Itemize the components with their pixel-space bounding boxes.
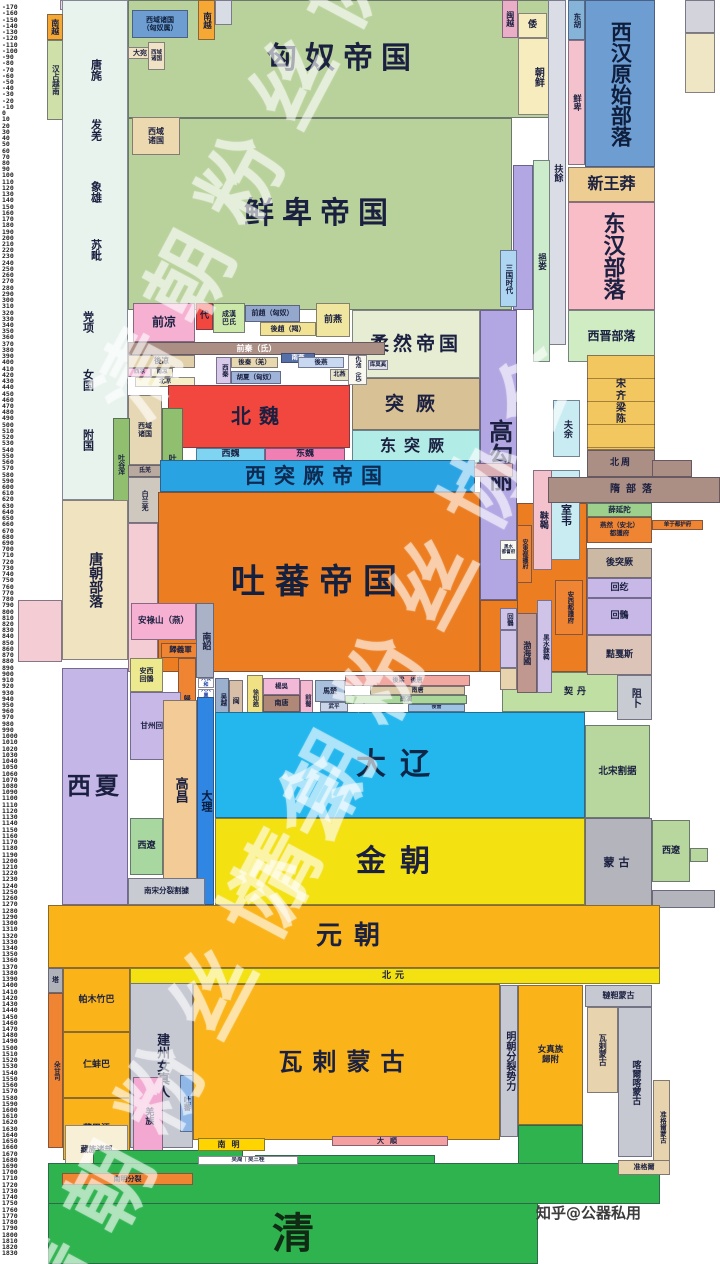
block-153-label: 准格爾: [618, 1160, 670, 1175]
block-25: [685, 0, 715, 33]
block-8-label: 党项: [76, 300, 98, 344]
dynasty-timeline-chart: -170-160-150-140-130-120-110-100-90-80-7…: [0, 0, 720, 1264]
block-5-label: 发羌: [84, 108, 106, 152]
block-79-label: 南詔: [196, 603, 214, 678]
block-38-label: 前凉: [133, 303, 195, 342]
block-113-label: 楊吳: [263, 678, 300, 695]
block-33-label: 三国时代: [500, 250, 517, 307]
block-92-label: 回鶻: [500, 608, 517, 630]
block-50-label: 後秦（羌）: [231, 357, 278, 368]
block-101-label: 隋部落: [548, 477, 720, 503]
block-6-label: 象雄: [84, 170, 106, 214]
block-65-label: 白兰羌: [128, 477, 162, 523]
block-26: [685, 33, 715, 93]
block-43-label: 前燕: [316, 303, 350, 337]
block-44-label: 前秦（氐）: [128, 342, 385, 355]
block-47-label: 南凉: [151, 368, 173, 377]
block-118-label: 後梁 後唐: [345, 675, 470, 686]
zhihu-credit: 知乎@公器私用: [536, 1202, 720, 1223]
block-134-label: 朵甘司: [48, 993, 63, 1148]
block-141-label: 吐蕃: [180, 1075, 193, 1132]
block-106-label: 回纥: [587, 578, 652, 598]
eastern-han-tribes: 东汉部落: [568, 202, 655, 310]
block-55-label: 仇池（氐）: [348, 355, 367, 385]
block-17: [215, 0, 232, 25]
block-114-label: 南唐: [263, 695, 300, 712]
block-102-label: 薛延陀: [587, 503, 652, 517]
dali: 大理: [197, 697, 214, 905]
block-135-label: 帕木竹巴: [63, 968, 130, 1032]
block-93: [500, 630, 517, 668]
block-121-label: 後晉: [408, 704, 465, 712]
block-154-label: 南明分裂: [62, 1173, 193, 1185]
tang-tribes: 唐朝部落: [62, 500, 128, 660]
xin-wangmang: 新王莽: [568, 167, 655, 202]
block-136-label: 仁蚌巴: [63, 1032, 130, 1098]
block-95-label: 夫余: [553, 400, 580, 457]
block-108-label: 黠戛斯: [587, 635, 652, 675]
block-49-label: 西秦: [216, 357, 231, 384]
xianbei-empire: 鲜卑帝国: [128, 118, 512, 310]
block-146-label: 喀爾喀蒙古: [618, 1007, 652, 1157]
block-89-label: 安東都護府: [517, 525, 532, 583]
block-100: [652, 460, 692, 477]
block-88-label: 黑水靺鞨: [537, 600, 552, 693]
block-90-label: 黑水 都督府: [500, 540, 517, 560]
block-85-label: 南宋分裂割據: [128, 878, 205, 905]
block-73-label: 安祿山（燕）: [131, 603, 196, 640]
block-4-label: 唐旄: [84, 48, 106, 92]
block-11-label: 南越: [47, 14, 63, 40]
southern-dynasties: 宋 齐 梁 陈: [587, 355, 655, 450]
block-18-label: 闽越: [502, 0, 518, 38]
yuan: 元朝: [48, 905, 660, 968]
block-74-label: 歸義軍: [161, 643, 200, 658]
block-51-label: 胡夏（匈奴）: [231, 371, 281, 384]
block-30-label: 挹娄: [533, 160, 550, 362]
block-109-label: 阻卜: [617, 675, 652, 720]
block-70: [18, 600, 62, 662]
ming-splinter: 明朝分裂势力: [500, 985, 518, 1137]
western-han-tribes: 西汉原始部落: [585, 0, 655, 167]
block-91-label: 安西都護府: [555, 580, 583, 635]
block-156-label: 大順: [332, 1136, 448, 1146]
block-128-label: 西遼: [652, 820, 690, 882]
block-12-label: 汉占越南: [47, 40, 63, 120]
block-13-label: 西域诸国 （匈奴属）: [132, 10, 188, 38]
block-40-label: 成漢 巴氏: [213, 303, 245, 333]
block-16-label: 南越: [198, 0, 215, 40]
block-87-label: 渤海國: [517, 613, 537, 693]
block-157-label: 吴周｜吴三桂: [198, 1156, 298, 1165]
western-xia: 西夏: [62, 668, 128, 905]
block-19-label: 倭: [518, 13, 547, 38]
oirat-mongols: 瓦剌蒙古: [193, 984, 500, 1140]
block-129: [690, 848, 708, 862]
block-80-label: 大長和: [198, 678, 214, 688]
block-76-label: 安西 回鶻: [130, 658, 163, 692]
block-140-label: 羌族: [133, 1077, 163, 1155]
block-120-label: 南漢: [345, 695, 467, 704]
block-133-label: 塔: [48, 968, 63, 993]
block-39-label: 代: [196, 303, 213, 330]
mongol: 蒙古: [585, 818, 652, 908]
block-116-label: 馬楚: [315, 680, 345, 702]
block-61-label: 西域 诸国: [128, 395, 162, 465]
turkic-khaganate: 突厥: [352, 378, 480, 430]
block-150: [518, 1125, 583, 1165]
block-45-label: 後凉: [128, 355, 195, 368]
timeline-year-label: 1830: [2, 1250, 18, 1257]
block-103-label: 燕然（安北） 都護府: [587, 517, 652, 543]
block-84-label: 西遼: [130, 818, 163, 875]
block-119-label: 南唐: [370, 686, 465, 695]
block-53-label: 後燕: [298, 357, 344, 368]
block-125-label: 北宋割据: [585, 725, 650, 818]
block-10-label: 附国: [76, 418, 98, 462]
block-64-label: 氐羌: [128, 465, 162, 477]
block-42-label: 後趙（羯）: [260, 322, 316, 336]
block-99-label: 北周: [587, 450, 655, 477]
block-54-label: 北燕: [330, 369, 349, 381]
block-41-label: 前趙（匈奴）: [245, 305, 300, 322]
block-71: [128, 523, 158, 672]
block-56-label: 库莫奚: [368, 360, 388, 370]
block-145-label: 瓦剌蒙古: [587, 1007, 618, 1093]
block-127: [652, 890, 715, 908]
block-117-label: 武平: [320, 702, 348, 712]
northern-wei: 北魏: [168, 385, 350, 448]
block-143-label: 女真族 歸附: [518, 985, 583, 1125]
block-46-label: 西凉: [128, 368, 151, 377]
block-7-label: 苏毗: [84, 228, 106, 272]
block-104-label: 单于都护府: [652, 520, 703, 530]
block-60-label: 西域 诸国: [132, 117, 180, 155]
block-94: [500, 668, 517, 690]
block-22-label: 东胡: [568, 0, 585, 40]
block-36-label: 东突厥: [352, 430, 480, 463]
xiongnu-empire: 匈奴帝国: [128, 0, 558, 118]
jin: 金朝: [215, 818, 585, 905]
block-9-label: 女国: [76, 358, 98, 402]
liao: 大辽: [215, 712, 585, 818]
block-105-label: 後突厥: [587, 548, 652, 578]
qing: 清: [48, 1203, 538, 1264]
block-23-label: 鲜卑: [568, 40, 585, 165]
block-83-label: 高昌: [163, 700, 197, 880]
block-131-label: 北元: [130, 968, 660, 984]
block-155-label: 南明: [198, 1138, 265, 1151]
western-turkic: 西突厥帝国: [160, 460, 475, 492]
block-107-label: 回鶻: [587, 598, 652, 635]
block-15-label: 西域 诸国: [148, 42, 165, 70]
block-144-label: 韃靼蒙古: [585, 985, 652, 1007]
block-21-label: 扶餘: [548, 0, 566, 345]
